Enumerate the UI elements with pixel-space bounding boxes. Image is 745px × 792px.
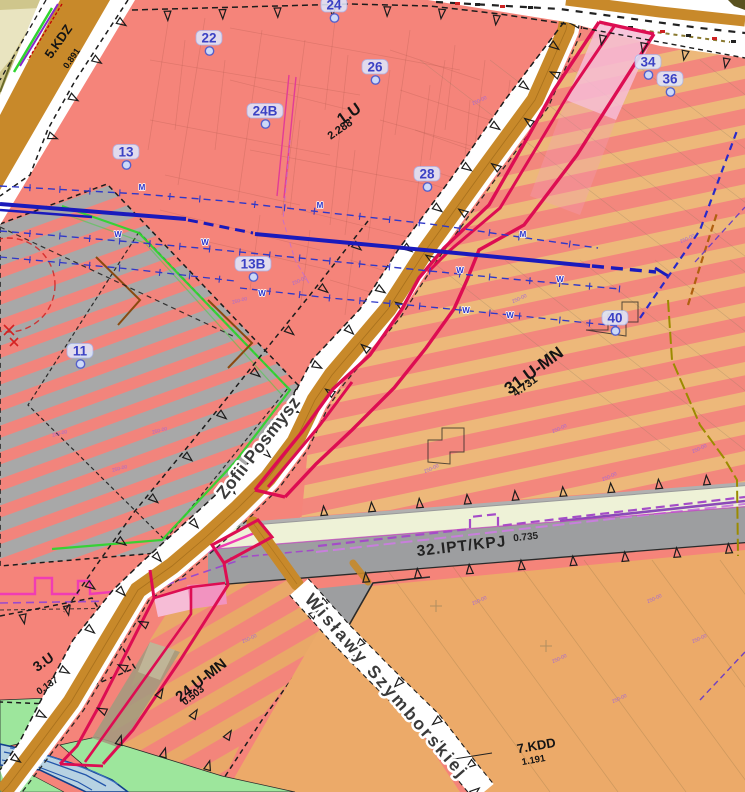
svg-text:M: M [520,230,527,239]
svg-text:W: W [201,238,209,247]
svg-text:24: 24 [326,0,342,13]
svg-text:13: 13 [118,145,134,160]
svg-text:11: 11 [73,344,88,359]
svg-text:W: W [556,275,564,284]
svg-text:W: W [462,306,470,315]
svg-text:22: 22 [201,31,216,46]
svg-text:24B: 24B [253,104,278,119]
svg-text:M: M [317,201,324,210]
svg-text:40: 40 [607,311,622,326]
svg-text:13B: 13B [241,257,266,272]
svg-text:26: 26 [367,60,383,75]
svg-text:36: 36 [662,72,678,87]
svg-text:34: 34 [640,55,656,70]
svg-text:W: W [456,266,464,275]
svg-text:W: W [258,289,266,298]
svg-text:W: W [114,230,122,239]
svg-text:M: M [139,183,146,192]
svg-text:28: 28 [419,167,435,182]
svg-text:W: W [506,311,514,320]
